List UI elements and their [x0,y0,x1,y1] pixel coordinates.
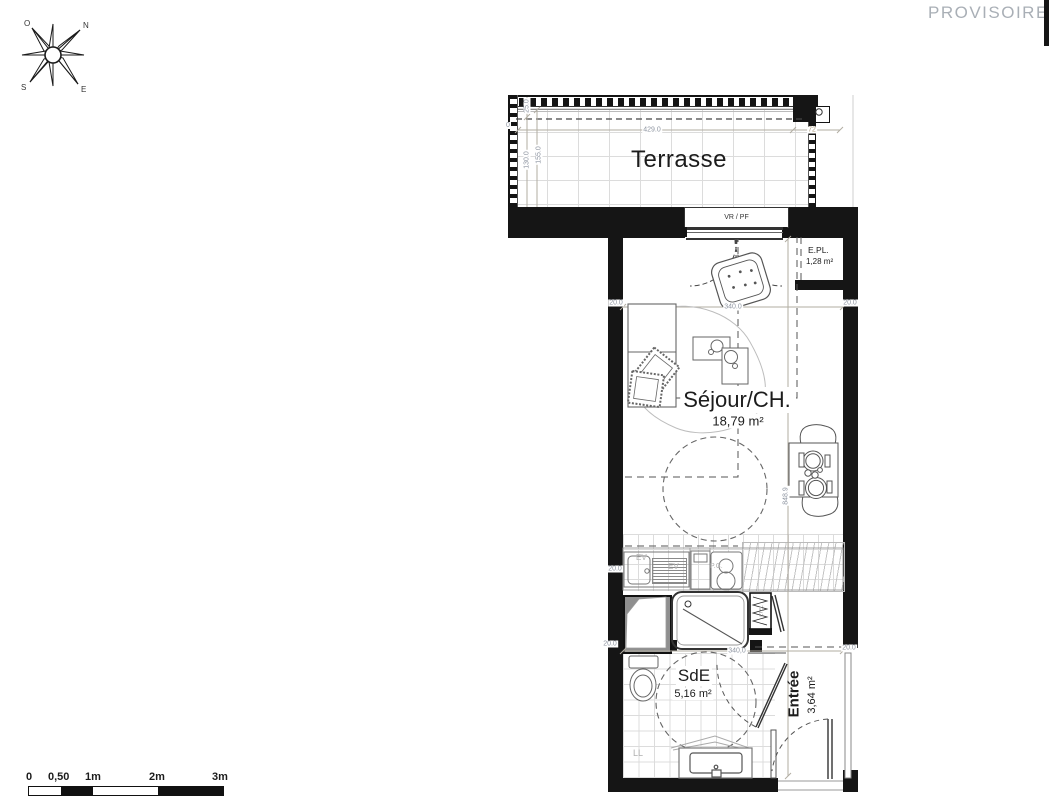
armchair [709,250,773,311]
window-jamb-left [684,227,687,237]
sink-label-2: EV [668,562,679,571]
sheet-edge-mark [1044,0,1049,46]
sink-label: EV [636,553,647,562]
sejour-dashed-circle [663,437,767,541]
dim-wall-entree: 20.0 [841,645,857,652]
sde-wall-stub-right [750,640,762,652]
scale-label-3m: 3m [212,771,228,783]
dim-wall-right-top: 20.0 [842,300,858,307]
dim-wall-kitchen: 20.0 [607,566,623,573]
south-east-corner-wall [843,770,858,792]
dim-wall-left-top: 20.0 [608,300,624,307]
scale-label-0: 0 [26,771,32,783]
epl-room-label: E.PL. [808,245,829,255]
compass-west-label: O [24,19,30,28]
window-shutter-box: VR / PF [684,207,789,228]
terrace-railing-top [508,95,800,115]
epl-wall-stub [795,280,843,290]
washer-label: LL [633,748,643,758]
scale-bar-segments [28,786,224,796]
window-glazing [686,228,783,240]
etel-label: ETEL [759,605,764,616]
cooktop-label: P.C. [710,563,723,570]
terrace-railing-left [508,95,518,207]
dim-terrace-zero: 0 [505,122,511,129]
etel-wall-bottom [748,628,772,635]
west-wall [608,238,623,792]
sde-area-label: 5,16 m² [672,688,713,700]
floor-plan-sheet: PROVISOIRE O N S E [0,0,1050,800]
dim-apartment-height: 848.9 [783,486,790,506]
scale-label-050: 0,50 [48,771,69,783]
etel-door-leaf [772,595,784,632]
window-swing-arcs [690,239,782,286]
compass-rose: O N S E [4,6,104,106]
technical-shaft [623,595,672,654]
scale-label-2m: 2m [149,771,165,783]
scale-bar: 0 0,50 1m 2m 3m [28,771,228,797]
entree-room-label: Entrée [786,671,803,718]
worktop-hatch [742,542,845,592]
dim-room-width: 340.0 [723,304,743,311]
dim-terrace-right: 72 [807,127,817,134]
sejour-area-label: 18,79 m² [710,414,765,429]
sejour-room-label: Séjour/CH. [680,387,794,413]
epl-area-label: 1,28 m² [806,257,833,266]
dim-terrace-d1: 130.0 [524,150,531,170]
north-wall-right [782,207,858,238]
compass-east-label: E [81,85,86,94]
dim-wall-sde-left: 20.0 [602,641,618,648]
entree-area-label: 3,64 m² [806,676,818,713]
sofa [628,304,680,407]
dim-terrace-rail: 25.0 [524,98,531,114]
compass-north-label: N [83,21,89,30]
shower-tray [672,592,748,649]
provisional-watermark: PROVISOIRE [928,3,1049,23]
terrace-railing-right [808,122,816,207]
window-shutter-label: VR / PF [724,214,749,221]
north-wall-left [508,207,685,238]
dim-terrace-d2: 155.0 [536,145,543,165]
dim-sde-width: 340,0 [727,648,747,655]
side-tables [693,337,748,384]
entrance-door [772,719,843,790]
compass-south-label: S [21,83,26,92]
window-jamb-right [783,227,787,237]
scale-label-1m: 1m [85,771,101,783]
terrace-room-label: Terrasse [631,146,727,174]
south-wall [608,778,778,792]
entree-east-wall [845,653,851,778]
rainwater-pipe [815,106,830,123]
dim-terrace-width: 429.0 [642,127,662,134]
sde-room-label: SdE [676,666,712,686]
compass-hub [45,47,61,63]
dining-set [789,425,838,517]
